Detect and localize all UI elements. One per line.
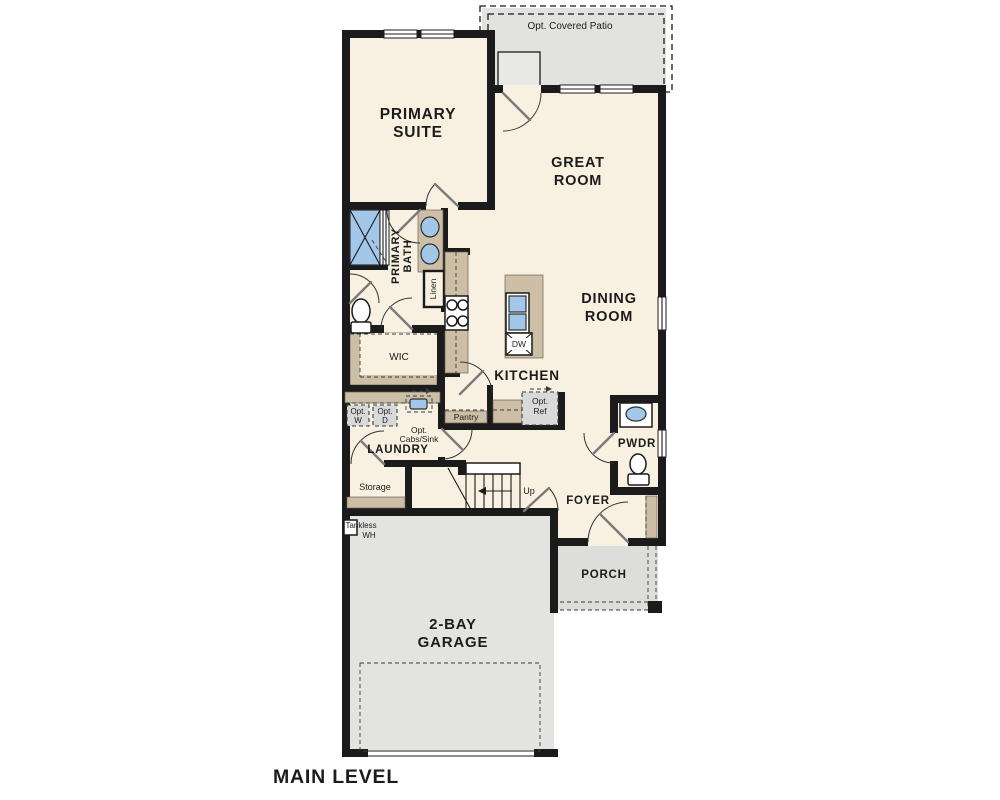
primary-suite-label-1: PRIMARY bbox=[380, 106, 457, 123]
opt-ref-label-2: Ref bbox=[533, 406, 547, 416]
kitchen-label: KITCHEN bbox=[494, 368, 560, 383]
toilet-tank bbox=[351, 322, 371, 333]
wall-ref-right bbox=[558, 392, 565, 430]
laundry-label: LAUNDRY bbox=[367, 444, 428, 456]
burner bbox=[447, 316, 457, 326]
storage-label: Storage bbox=[359, 482, 391, 492]
toilet-bowl bbox=[352, 299, 370, 323]
wall-pwdr-left-a bbox=[610, 395, 618, 433]
pwdr-toilet-bowl bbox=[630, 454, 646, 474]
wall-laundry-bottom-b bbox=[384, 460, 466, 467]
primary-bath-label-1: PRIMARY bbox=[390, 228, 402, 284]
up-label: Up bbox=[523, 486, 535, 496]
dining-room-label-1: DINING bbox=[581, 291, 637, 307]
wall-landing-stub bbox=[458, 461, 466, 475]
opt-dryer-label-1: Opt. bbox=[377, 407, 392, 416]
plan-title: MAIN LEVEL bbox=[273, 766, 399, 788]
wall-porch-top-a bbox=[558, 538, 588, 546]
wall-laundry-right-a bbox=[438, 385, 445, 429]
window bbox=[658, 430, 666, 457]
wall-primary-suite-top bbox=[342, 30, 495, 38]
wall-pwdr-left-b bbox=[610, 461, 618, 487]
porch-column bbox=[648, 601, 662, 613]
wall-suite-bottom-a bbox=[342, 202, 426, 210]
dw-label: DW bbox=[512, 339, 526, 349]
wall-pwdr-bottom bbox=[610, 487, 658, 495]
wall-porch-top-b bbox=[628, 538, 666, 546]
patio-pad bbox=[498, 52, 540, 90]
storage-shelf bbox=[347, 497, 405, 508]
window bbox=[384, 30, 417, 38]
tankless-label-1: Tankless bbox=[345, 521, 376, 530]
wall-garage-right bbox=[550, 508, 558, 613]
window bbox=[658, 297, 666, 330]
island-sink-basin-1 bbox=[509, 296, 526, 312]
wall-garage-bottom-b bbox=[534, 749, 558, 757]
pwdr-sink bbox=[626, 407, 646, 421]
garage-label-2: GARAGE bbox=[418, 634, 489, 651]
window bbox=[560, 85, 595, 93]
wall-suite-bottom-b bbox=[458, 202, 495, 210]
floor-plan-svg: Opt. Covered Patio bbox=[0, 0, 1000, 800]
wic-label: WIC bbox=[389, 352, 408, 363]
garage-label-1: 2-BAY bbox=[429, 616, 477, 633]
dining-room-label-2: ROOM bbox=[585, 309, 633, 325]
opt-washer-label-1: Opt. bbox=[350, 407, 365, 416]
entry-option-wall bbox=[646, 496, 657, 538]
wall-storage-right bbox=[405, 467, 412, 508]
wall-greatroom-top-a bbox=[495, 85, 503, 93]
window bbox=[600, 85, 633, 93]
foyer-label: FOYER bbox=[566, 495, 610, 507]
primary-suite-label-2: SUITE bbox=[393, 124, 443, 141]
covered-patio: Opt. Covered Patio bbox=[480, 6, 672, 92]
opt-washer-label-2: W bbox=[354, 416, 362, 425]
storage-room bbox=[347, 497, 405, 508]
tankless-label-2: WH bbox=[362, 531, 376, 540]
wall-suite-greatroom bbox=[487, 30, 495, 210]
opt-dryer-label-2: D bbox=[382, 416, 388, 425]
porch-label: PORCH bbox=[581, 569, 627, 581]
burner bbox=[458, 316, 468, 326]
opt-laundry-sink bbox=[410, 399, 427, 409]
linen-label: Linen bbox=[428, 278, 438, 299]
vanity-sink-1 bbox=[421, 217, 439, 237]
great-room-label-2: ROOM bbox=[554, 173, 602, 189]
pwdr-toilet-tank bbox=[628, 474, 649, 485]
wall-laundry-bottom-a bbox=[342, 460, 350, 467]
wall-garage-bottom-a bbox=[342, 749, 368, 757]
kitchen-counter-right bbox=[493, 400, 522, 423]
stair-landing bbox=[466, 463, 520, 474]
window bbox=[421, 30, 454, 38]
vanity-sink-2 bbox=[421, 244, 439, 264]
burner bbox=[447, 300, 457, 310]
island-sink-basin-2 bbox=[509, 314, 526, 330]
great-room-label-1: GREAT bbox=[551, 155, 605, 171]
opt-ref-label-1: Opt. bbox=[532, 396, 548, 406]
burner bbox=[458, 300, 468, 310]
wall-wic-right bbox=[437, 325, 445, 392]
patio-label: Opt. Covered Patio bbox=[527, 21, 612, 32]
opt-cabs-label-2: Cabs/Sink bbox=[400, 434, 439, 444]
primary-bath-label-2: BATH bbox=[402, 240, 414, 273]
pwdr-label: PWDR bbox=[618, 438, 656, 450]
floor-plan-page: Opt. Covered Patio bbox=[0, 0, 1000, 800]
pantry-label: Pantry bbox=[454, 412, 479, 422]
